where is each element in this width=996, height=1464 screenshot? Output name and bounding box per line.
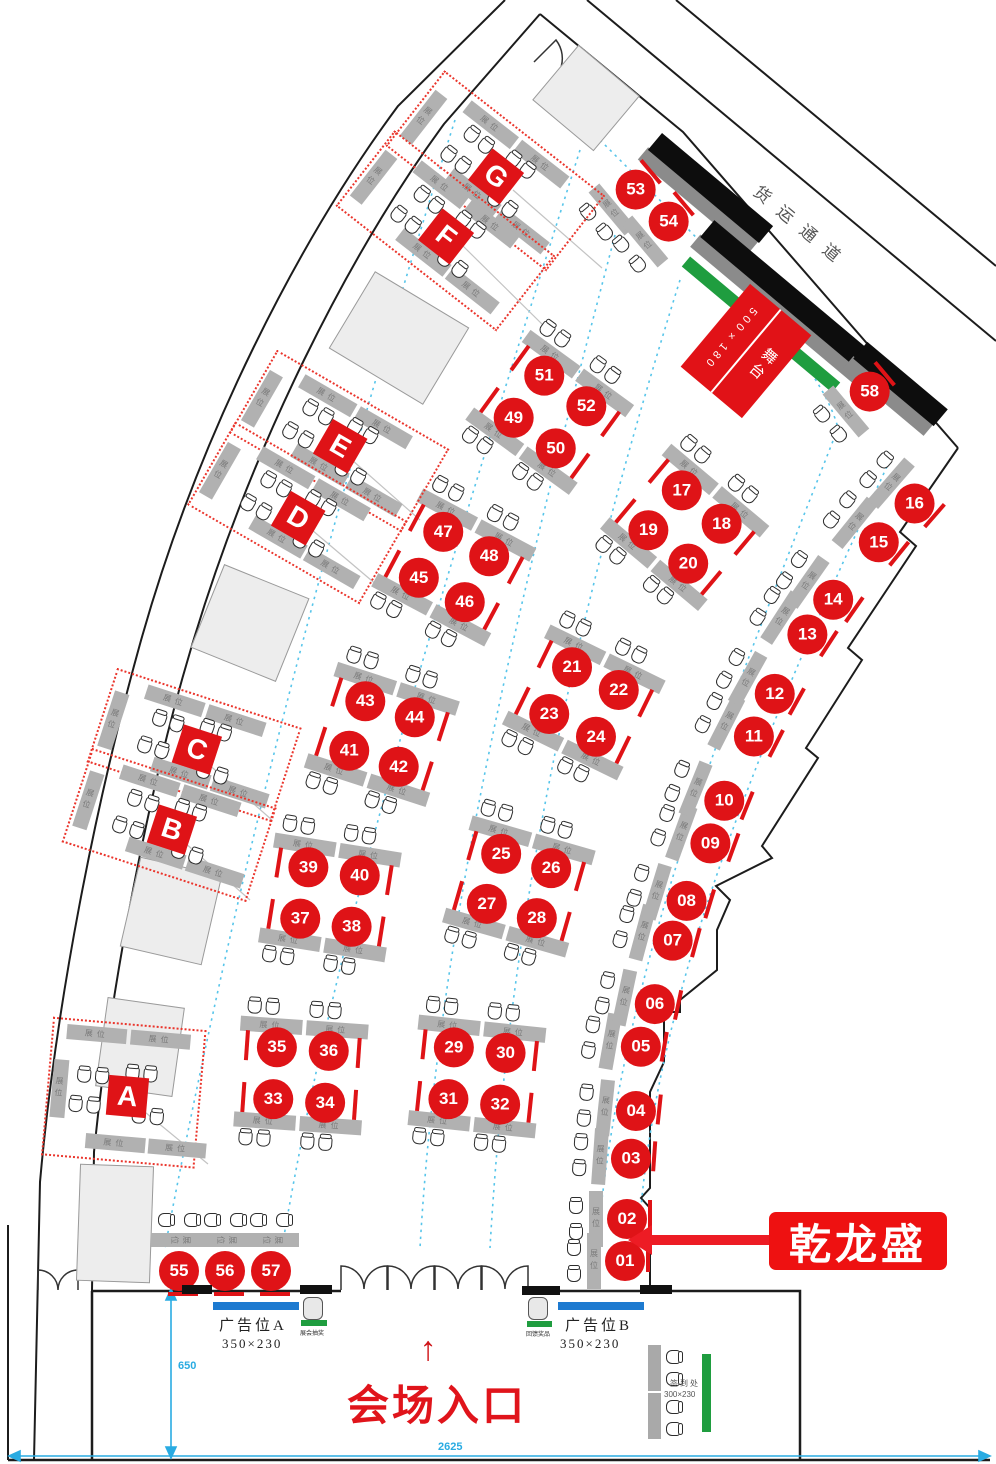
booth-circle-19: 19 bbox=[628, 510, 668, 550]
booth-circle-58: 58 bbox=[850, 372, 890, 412]
booth-circle-14: 14 bbox=[813, 580, 853, 620]
booth-circle-38: 38 bbox=[332, 907, 372, 947]
booth-boundary-tick bbox=[260, 1292, 290, 1296]
booth-circle-32: 32 bbox=[480, 1085, 520, 1125]
booth-strip: 展位 bbox=[243, 1233, 299, 1247]
booth-circle-23: 23 bbox=[529, 694, 569, 734]
booth-circle-50: 50 bbox=[536, 428, 576, 468]
chair-icon bbox=[300, 1135, 315, 1150]
booth-circle-11: 11 bbox=[734, 717, 774, 757]
booth-circle-26: 26 bbox=[531, 848, 571, 888]
ad-a-size: 350×230 bbox=[222, 1336, 282, 1352]
booth-circle-13: 13 bbox=[787, 614, 827, 654]
chair-icon bbox=[265, 1000, 280, 1015]
area-tile-A: A bbox=[106, 1075, 149, 1118]
chair-icon bbox=[327, 1005, 342, 1020]
ad-bar-a bbox=[213, 1302, 299, 1310]
booth-circle-52: 52 bbox=[566, 386, 606, 426]
chair-icon bbox=[158, 1213, 172, 1227]
chair-icon bbox=[567, 1268, 581, 1282]
dimension-width: 2625 bbox=[438, 1441, 462, 1453]
ad-a-label: 广告位A bbox=[219, 1314, 287, 1335]
wall-segment bbox=[300, 1285, 332, 1294]
booth-circle-37: 37 bbox=[280, 899, 320, 939]
booth-circle-36: 36 bbox=[309, 1031, 349, 1071]
booth-circle-35: 35 bbox=[257, 1027, 297, 1067]
booth-circle-05: 05 bbox=[621, 1027, 661, 1067]
booth-circle-24: 24 bbox=[576, 717, 616, 757]
chair-icon bbox=[230, 1213, 244, 1227]
prize-table-icon bbox=[528, 1297, 548, 1320]
signin-desk bbox=[648, 1345, 661, 1391]
booth-circle-42: 42 bbox=[379, 747, 419, 787]
booth-circle-28: 28 bbox=[517, 898, 557, 938]
booth-circle-54: 54 bbox=[649, 202, 689, 242]
signin-desk bbox=[648, 1393, 661, 1439]
wall-segment bbox=[522, 1286, 560, 1295]
booth-circle-34: 34 bbox=[305, 1083, 345, 1123]
chair-icon bbox=[318, 1136, 333, 1151]
booth-circle-20: 20 bbox=[668, 544, 708, 584]
chair-icon bbox=[238, 1131, 253, 1146]
prize-note-b: 回馈奖品 bbox=[526, 1329, 550, 1338]
chair-icon bbox=[250, 1213, 264, 1227]
signin-label: 签到处 bbox=[670, 1378, 700, 1389]
lottery-note-a: 展会抽奖 bbox=[300, 1328, 324, 1337]
booth-circle-21: 21 bbox=[552, 647, 592, 687]
booth-circle-49: 49 bbox=[494, 398, 534, 438]
brand-callout: 乾龙盛 bbox=[769, 1212, 947, 1270]
pillar bbox=[76, 1164, 154, 1284]
booth-circle-09: 09 bbox=[690, 823, 730, 863]
booth-circle-30: 30 bbox=[486, 1033, 526, 1073]
booth-circle-29: 29 bbox=[434, 1027, 474, 1067]
booth-circle-33: 33 bbox=[253, 1079, 293, 1119]
chair-icon bbox=[567, 1242, 581, 1256]
chair-icon bbox=[309, 1003, 324, 1018]
lottery-table-icon bbox=[303, 1297, 323, 1320]
booth-circle-40: 40 bbox=[340, 855, 380, 895]
booth-circle-57: 57 bbox=[251, 1251, 291, 1291]
chair-icon bbox=[569, 1226, 583, 1240]
ad-b-size: 350×230 bbox=[560, 1336, 620, 1352]
exhibition-floor-plan: 500×180 舞台 货运通道 展位01展位02展位03展位04展位05展位06… bbox=[0, 0, 996, 1464]
prize-green-bar bbox=[527, 1321, 552, 1327]
booth-circle-03: 03 bbox=[611, 1139, 651, 1179]
dimension-height: 650 bbox=[178, 1360, 196, 1372]
callout-arrow-head bbox=[628, 1225, 652, 1255]
chair-icon bbox=[247, 999, 262, 1014]
booth-circle-43: 43 bbox=[345, 681, 385, 721]
booth-circle-06: 06 bbox=[635, 984, 675, 1024]
entrance-label: 会场入口 bbox=[307, 1372, 567, 1433]
signin-chair bbox=[666, 1350, 680, 1364]
booth-circle-47: 47 bbox=[423, 512, 463, 552]
chair-icon bbox=[204, 1213, 218, 1227]
lottery-green-bar bbox=[301, 1320, 327, 1326]
wall-segment bbox=[182, 1285, 212, 1294]
booth-circle-12: 12 bbox=[755, 674, 795, 714]
signin-size: 300×230 bbox=[664, 1390, 695, 1399]
booth-strip: 展位 bbox=[589, 1191, 603, 1247]
signin-chair bbox=[666, 1422, 680, 1436]
booth-circle-04: 04 bbox=[616, 1091, 656, 1131]
signin-green-bar bbox=[702, 1354, 711, 1432]
booth-circle-07: 07 bbox=[653, 921, 693, 961]
booth-circle-39: 39 bbox=[288, 847, 328, 887]
entrance-arrow: ↑ bbox=[408, 1330, 448, 1369]
booth-circle-25: 25 bbox=[481, 834, 521, 874]
callout-arrow-shaft bbox=[652, 1235, 770, 1245]
chair-icon bbox=[569, 1200, 583, 1214]
booth-circle-46: 46 bbox=[445, 582, 485, 622]
chair-icon bbox=[276, 1213, 290, 1227]
booth-boundary-tick bbox=[214, 1292, 244, 1296]
chair-icon bbox=[572, 1162, 587, 1177]
booth-circle-18: 18 bbox=[702, 504, 742, 544]
booth-circle-22: 22 bbox=[599, 670, 639, 710]
ad-bar-b bbox=[558, 1302, 644, 1310]
booth-circle-48: 48 bbox=[469, 536, 509, 576]
ad-b-label: 广告位B bbox=[565, 1314, 632, 1335]
booth-circle-41: 41 bbox=[329, 731, 369, 771]
chair-icon bbox=[184, 1213, 198, 1227]
wall-segment bbox=[640, 1285, 672, 1294]
chair-icon bbox=[573, 1136, 588, 1151]
booth-circle-08: 08 bbox=[667, 881, 707, 921]
signin-chair bbox=[666, 1400, 680, 1414]
booth-circle-27: 27 bbox=[467, 884, 507, 924]
booth-circle-31: 31 bbox=[428, 1079, 468, 1119]
booth-circle-17: 17 bbox=[662, 470, 702, 510]
booth-circle-51: 51 bbox=[524, 356, 564, 396]
booth-circle-44: 44 bbox=[395, 697, 435, 737]
booth-circle-53: 53 bbox=[616, 170, 656, 210]
booth-circle-10: 10 bbox=[704, 781, 744, 821]
chair-icon bbox=[256, 1132, 271, 1147]
booth-circle-45: 45 bbox=[399, 558, 439, 598]
